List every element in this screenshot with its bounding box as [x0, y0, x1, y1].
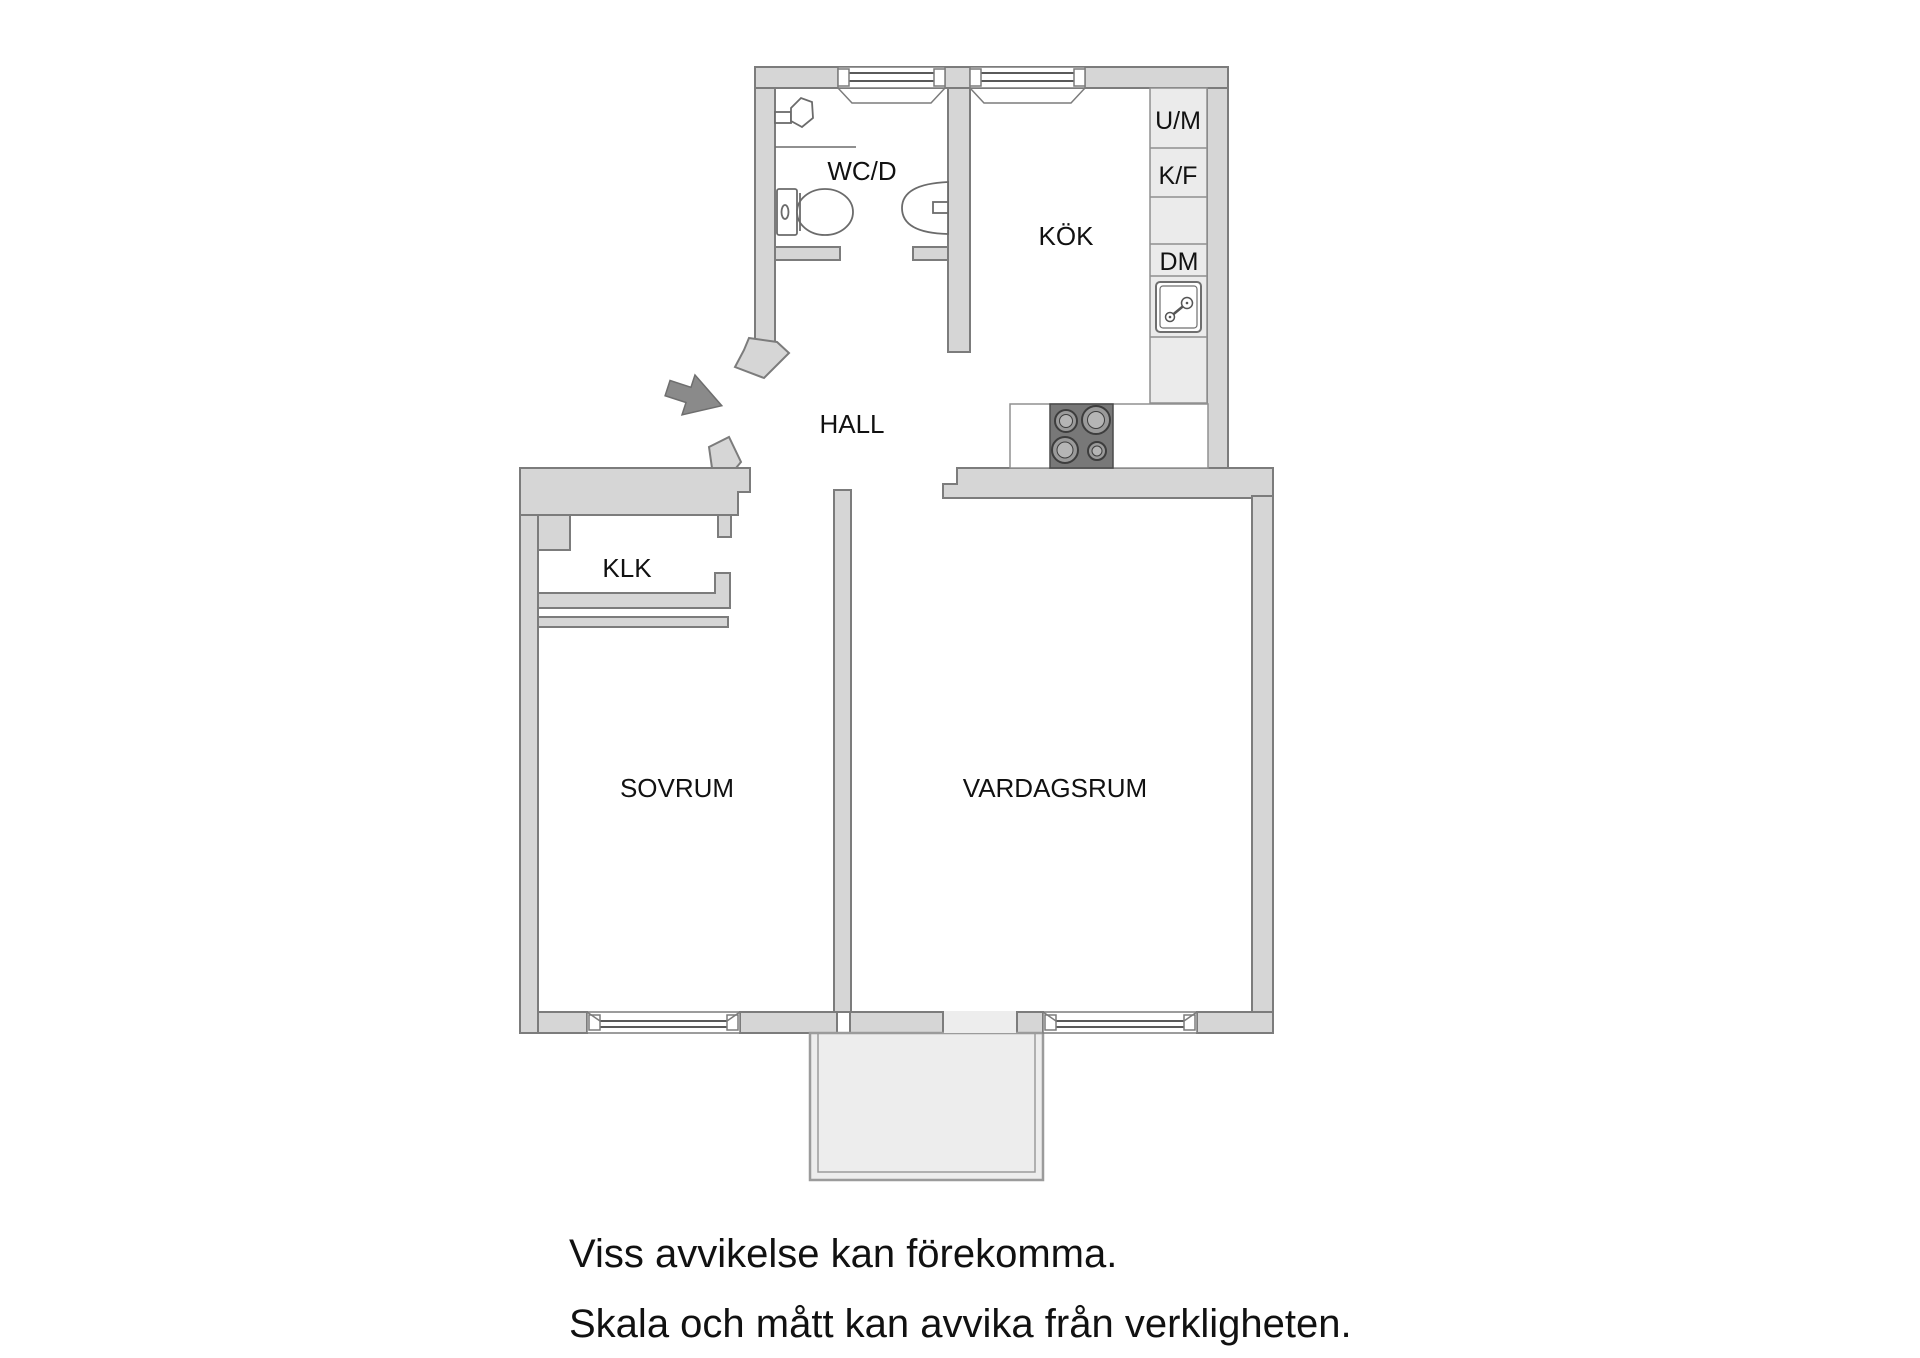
- wall-bottom-right-1: [1197, 1012, 1273, 1033]
- floor-plan-svg: WC/D KÖK HALL KLK SOVRUM VARDAGSRUM U/M …: [0, 0, 1920, 1358]
- wall-bottom-right-2: [1017, 1012, 1043, 1033]
- windows: [587, 67, 1197, 1033]
- window-vardagsrum: [1043, 1012, 1197, 1033]
- window-kok: [970, 67, 1085, 103]
- balcony-floor: [810, 1033, 1043, 1180]
- wall-left-lower: [520, 468, 538, 1033]
- stove-hob-icon: [1050, 404, 1113, 468]
- label-klk: KLK: [602, 553, 652, 583]
- wall-klk-door-jamb: [718, 515, 731, 537]
- wall-entrance-lower-angled: [709, 437, 741, 468]
- disclaimer-line-1: Viss avvikelse kan förekomma.: [569, 1232, 1117, 1276]
- label-um: U/M: [1155, 107, 1201, 135]
- wall-room-divider: [834, 490, 851, 1012]
- balcony-door-opening: [944, 1011, 1016, 1033]
- label-sovrum: SOVRUM: [620, 773, 734, 803]
- label-wcd: WC/D: [827, 156, 896, 186]
- wall-klk-top-band: [520, 468, 750, 515]
- wall-bottom-sovrum-left: [538, 1012, 587, 1033]
- wall-bottom-mid: [850, 1012, 943, 1033]
- disclaimer-line-2: Skala och mått kan avvika från verklighe…: [569, 1302, 1352, 1346]
- wall-wcd-bottom-left: [775, 247, 840, 260]
- window-wcd: [838, 67, 945, 103]
- disclaimer: Viss avvikelse kan förekomma. Skala och …: [569, 1232, 1352, 1346]
- entrance-arrow-icon: [661, 368, 728, 426]
- label-kok: KÖK: [1039, 221, 1095, 251]
- kitchen-cabinet-column: [1150, 88, 1207, 403]
- wall-right-lower: [1252, 496, 1273, 1033]
- floor-plan-page: WC/D KÖK HALL KLK SOVRUM VARDAGSRUM U/M …: [0, 0, 1920, 1358]
- wall-bottom-sovrum-right: [740, 1012, 837, 1033]
- wall-wcd-kok-divider: [948, 88, 970, 352]
- wall-klk-thin-band: [538, 617, 728, 627]
- wall-wcd-bottom-right: [913, 247, 948, 260]
- shower-mixer-icon: [775, 98, 813, 127]
- window-sovrum: [587, 1012, 740, 1033]
- balcony: [810, 1011, 1043, 1180]
- wall-klk-left-step: [538, 515, 570, 550]
- wall-left-upper-angled-end: [735, 338, 789, 378]
- washbasin-icon: [902, 182, 948, 234]
- toilet-icon: [777, 189, 853, 235]
- wall-vardagsrum-top: [943, 468, 1273, 498]
- label-kf: K/F: [1159, 162, 1198, 190]
- wall-right-upper: [1207, 88, 1228, 468]
- kitchen-sink-icon: [1156, 282, 1201, 332]
- label-hall: HALL: [819, 409, 884, 439]
- label-dm: DM: [1160, 248, 1199, 276]
- wall-left-upper: [755, 88, 775, 342]
- label-vardagsrum: VARDAGSRUM: [963, 773, 1147, 803]
- kitchen-fittings: [1010, 88, 1208, 468]
